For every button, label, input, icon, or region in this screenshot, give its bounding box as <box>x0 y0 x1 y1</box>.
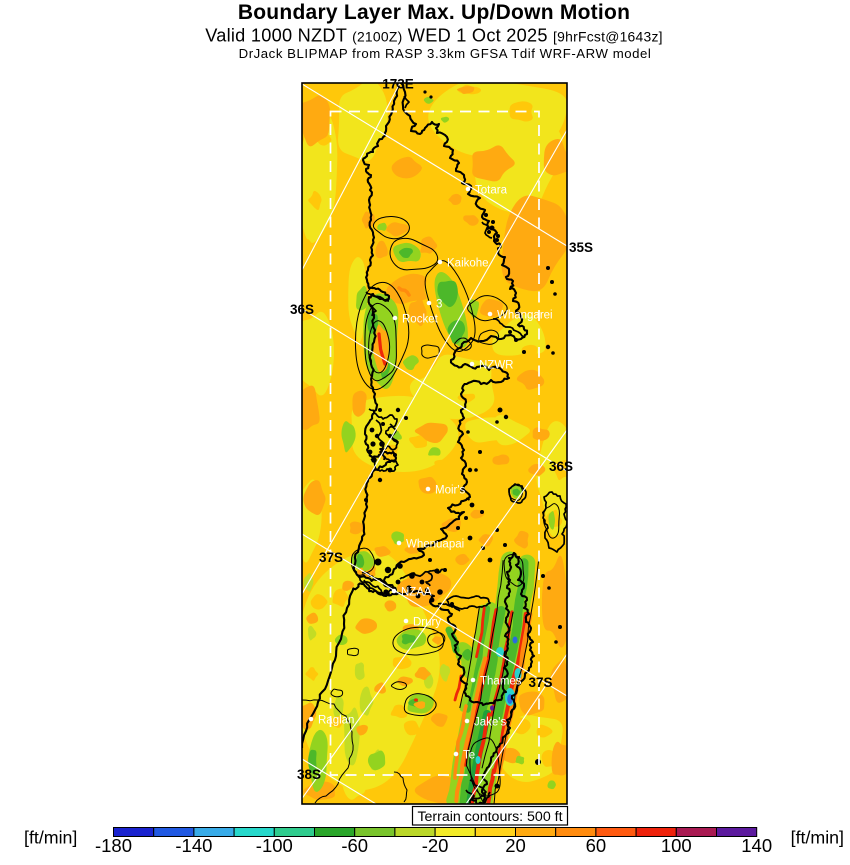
svg-text:Jake's: Jake's <box>474 717 506 729</box>
svg-text:173E: 173E <box>382 77 414 92</box>
svg-text:Valid 1000 NZDT (2100Z) WED 1: Valid 1000 NZDT (2100Z) WED 1 Oct 2025 [… <box>205 25 663 45</box>
svg-text:Rocket: Rocket <box>402 314 439 326</box>
svg-text:Drury: Drury <box>413 617 441 629</box>
svg-text:35S: 35S <box>569 240 593 255</box>
svg-text:140: 140 <box>741 835 772 856</box>
svg-text:Kaikohe: Kaikohe <box>447 258 489 270</box>
svg-text:Terrain contours: 500 ft: Terrain contours: 500 ft <box>417 809 562 825</box>
svg-text:Raglan: Raglan <box>318 715 354 727</box>
svg-text:-140: -140 <box>175 835 212 856</box>
svg-text:-100: -100 <box>256 835 293 856</box>
svg-text:38S: 38S <box>297 767 321 782</box>
svg-text:NZWR: NZWR <box>479 360 514 372</box>
svg-text:[ft/min]: [ft/min] <box>24 828 77 848</box>
svg-text:37S: 37S <box>319 550 343 565</box>
svg-text:-20: -20 <box>422 835 449 856</box>
svg-text:20: 20 <box>505 835 526 856</box>
svg-text:Te: Te <box>463 750 475 762</box>
svg-text:Boundary Layer Max. Up/Down Mo: Boundary Layer Max. Up/Down Motion <box>238 1 630 24</box>
svg-text:3: 3 <box>436 299 442 311</box>
svg-text:[ft/min]: [ft/min] <box>791 828 844 848</box>
svg-text:37S: 37S <box>529 675 553 690</box>
svg-text:DrJack BLIPMAP from RASP 3.3km: DrJack BLIPMAP from RASP 3.3km GFSA Tdif… <box>239 46 652 61</box>
svg-text:Whangarei: Whangarei <box>497 310 553 322</box>
svg-text:60: 60 <box>586 835 607 856</box>
svg-text:Totara: Totara <box>475 185 508 197</box>
svg-text:-180: -180 <box>95 835 132 856</box>
svg-text:Moir's: Moir's <box>435 485 466 497</box>
svg-text:Thames: Thames <box>480 676 522 688</box>
svg-text:100: 100 <box>661 835 692 856</box>
svg-text:NZAA: NZAA <box>401 587 432 599</box>
svg-text:Whenuapai: Whenuapai <box>406 539 464 551</box>
svg-text:-60: -60 <box>341 835 368 856</box>
svg-text:36S: 36S <box>549 459 573 474</box>
